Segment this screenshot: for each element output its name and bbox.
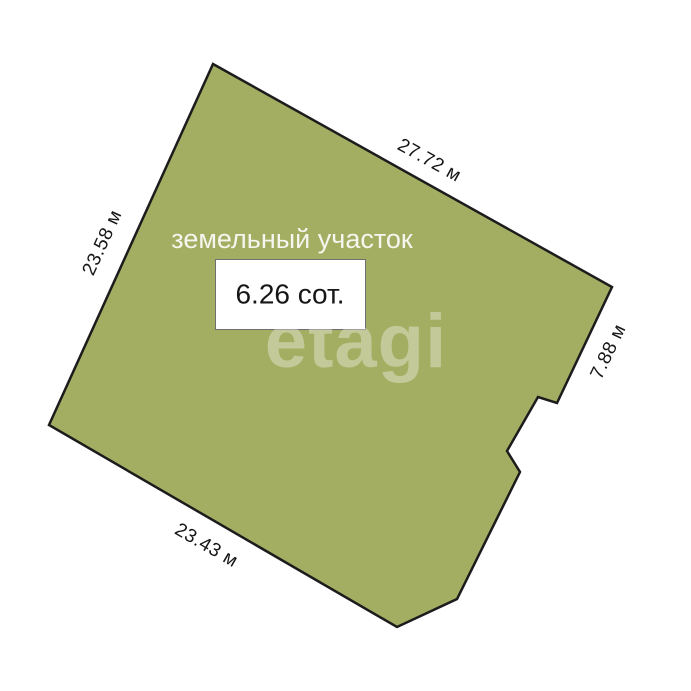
plot-plan-canvas: 27.72 м 23.58 м 7.88 м 23.43 м земельный… xyxy=(0,0,691,691)
dimension-label-right: 7.88 м xyxy=(587,321,631,383)
plot-title-label: земельный участок xyxy=(171,224,413,254)
watermark-logo: etagi xyxy=(265,299,447,384)
land-plot-diagram: 27.72 м 23.58 м 7.88 м 23.43 м земельный… xyxy=(0,0,691,691)
